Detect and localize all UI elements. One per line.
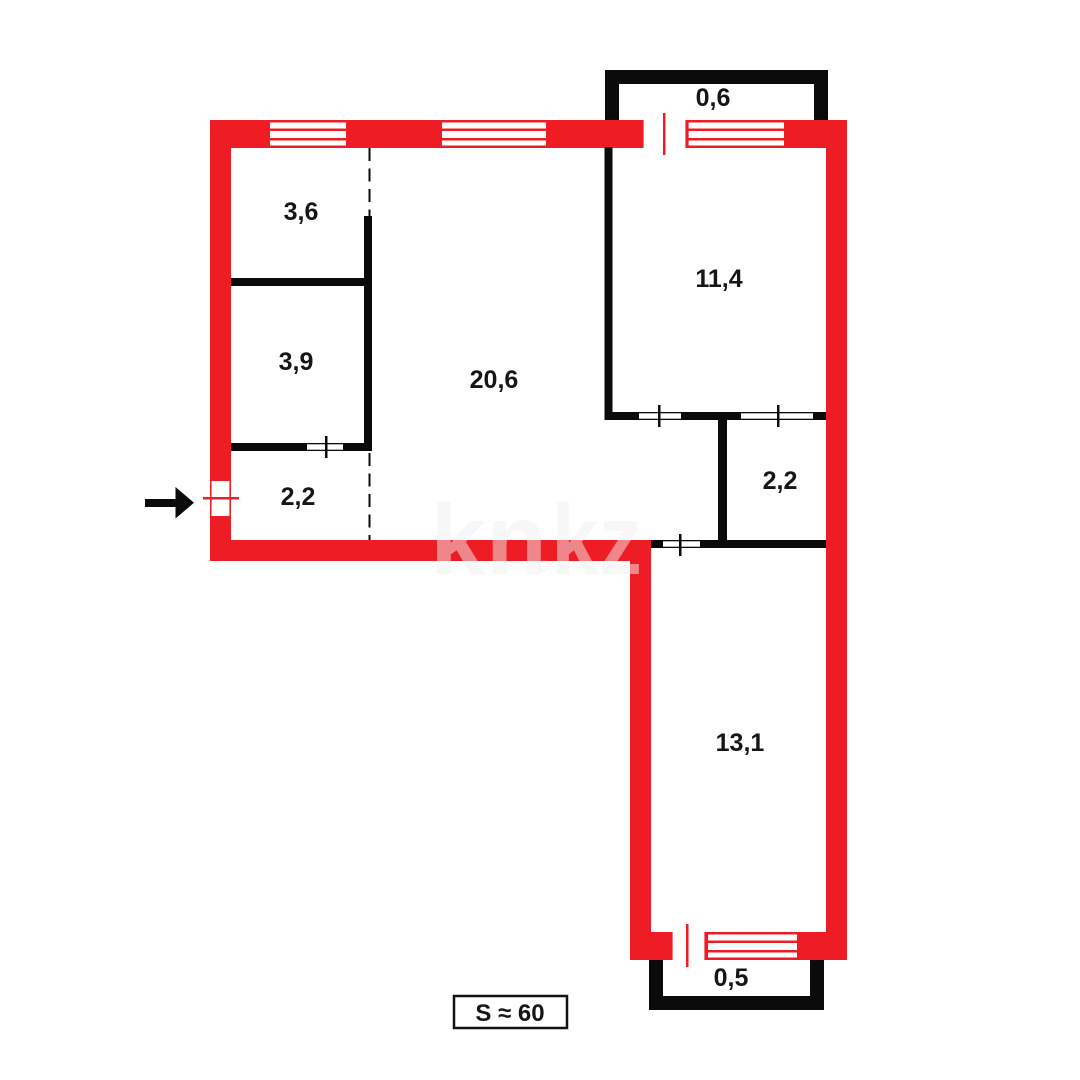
svg-text:0,5: 0,5 (714, 964, 749, 992)
svg-text:0,6: 0,6 (696, 84, 731, 112)
svg-text:2,2: 2,2 (763, 467, 798, 495)
svg-text:20,6: 20,6 (470, 366, 519, 394)
svg-text:3,6: 3,6 (284, 198, 319, 226)
svg-text:2,2: 2,2 (281, 483, 316, 511)
svg-text:kz: kz (551, 484, 642, 596)
svg-text:11,4: 11,4 (695, 265, 742, 293)
svg-text:S ≈ 60: S ≈ 60 (475, 1000, 544, 1027)
svg-text:3,9: 3,9 (279, 348, 314, 376)
svg-text:13,1: 13,1 (716, 729, 765, 757)
svg-text:kn: kn (430, 484, 547, 596)
